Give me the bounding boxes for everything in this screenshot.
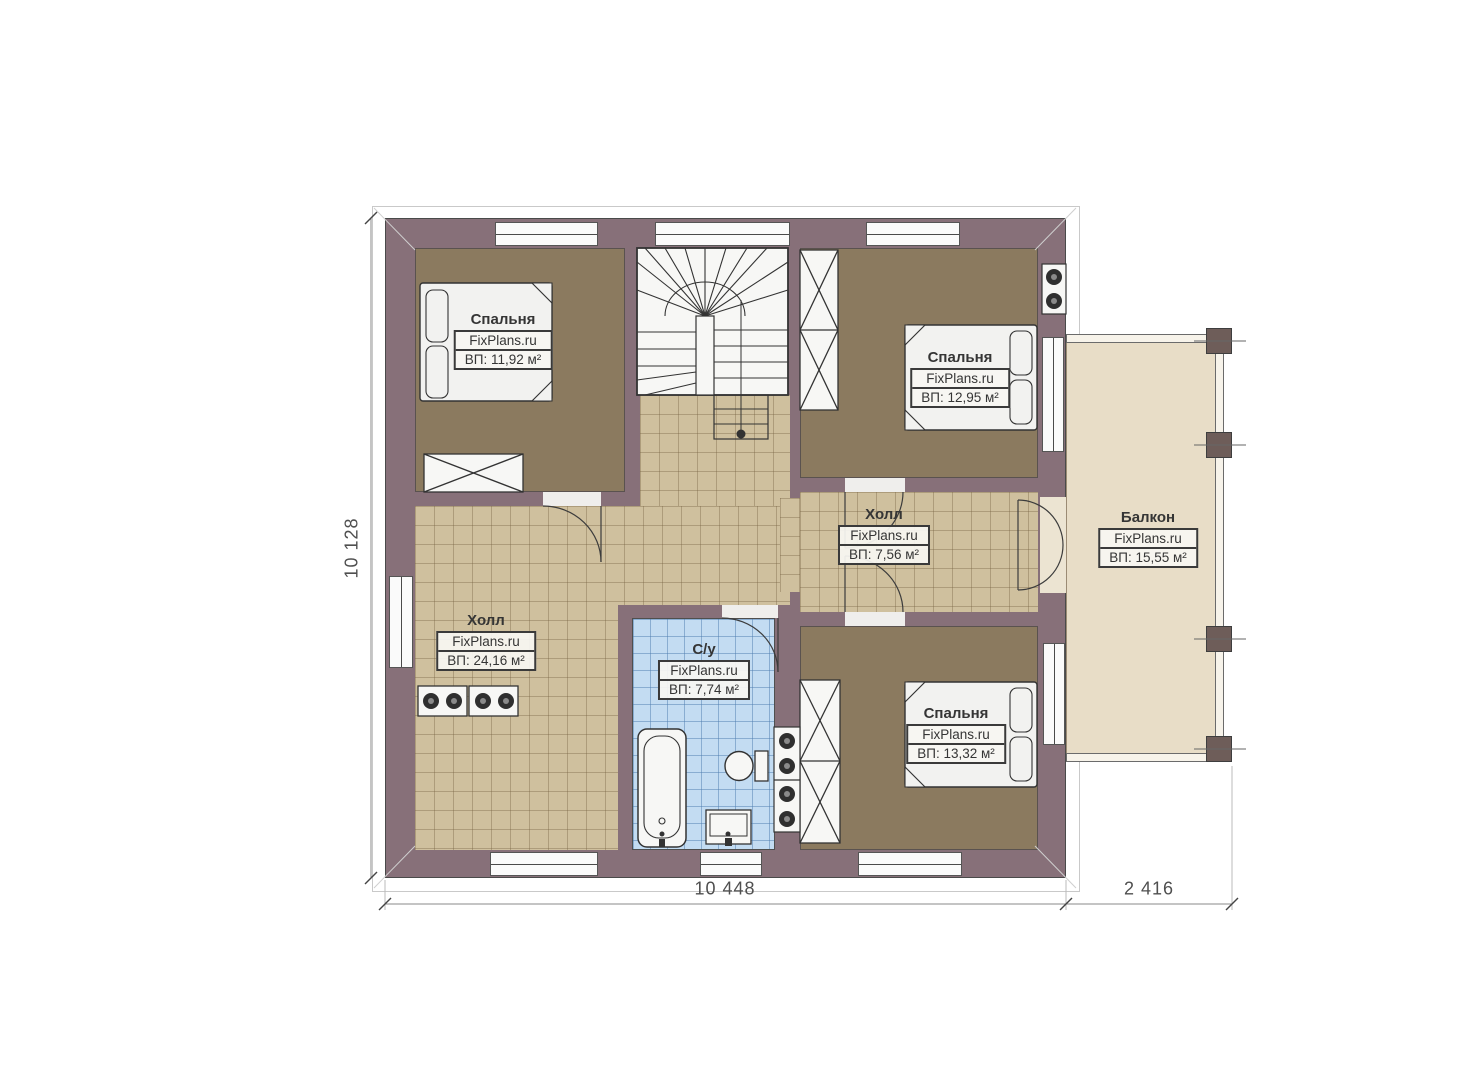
door xyxy=(543,506,601,562)
sink xyxy=(706,810,751,846)
vent-unit xyxy=(1042,264,1066,314)
dimension-left-height: 10 128 xyxy=(342,517,363,578)
watermark: FixPlans.ru xyxy=(456,332,551,351)
room-label-hall-center: Холл FixPlans.ru ВП: 7,56 м² xyxy=(838,506,930,565)
vent-unit xyxy=(774,727,800,832)
watermark: FixPlans.ru xyxy=(840,527,928,546)
dimension-bottom-main: 10 448 xyxy=(694,879,755,900)
room-label-balcony: Балкон FixPlans.ru ВП: 15,55 м² xyxy=(1098,509,1198,568)
room-name: Спальня xyxy=(910,349,1010,366)
vent-unit xyxy=(418,686,518,716)
wardrobe xyxy=(424,454,523,492)
dimension-bottom-balcony: 2 416 xyxy=(1124,879,1174,900)
room-name: С/у xyxy=(658,641,750,658)
watermark: FixPlans.ru xyxy=(438,633,534,652)
toilet xyxy=(725,751,768,781)
room-label-bedroom-top-right: Спальня FixPlans.ru ВП: 12,95 м² xyxy=(910,349,1010,408)
room-area: ВП: 15,55 м² xyxy=(1100,549,1196,566)
bathtub xyxy=(638,729,686,847)
balcony-post-ticks xyxy=(1194,341,1246,749)
staircase xyxy=(637,248,788,439)
watermark: FixPlans.ru xyxy=(660,662,748,681)
room-label-bedroom-bottom-right: Спальня FixPlans.ru ВП: 13,32 м² xyxy=(906,705,1006,764)
wardrobe xyxy=(800,680,840,843)
room-name: Холл xyxy=(436,612,536,629)
balcony-double-door xyxy=(1018,500,1063,590)
floor-plan: Спальня FixPlans.ru ВП: 11,92 м² Спальня… xyxy=(0,0,1473,1080)
room-name: Балкон xyxy=(1098,509,1198,526)
room-area: ВП: 7,74 м² xyxy=(660,681,748,698)
watermark: FixPlans.ru xyxy=(912,370,1008,389)
watermark: FixPlans.ru xyxy=(908,726,1004,745)
watermark: FixPlans.ru xyxy=(1100,530,1196,549)
wardrobe xyxy=(800,250,838,410)
room-name: Спальня xyxy=(454,311,553,328)
room-label-hall-left: Холл FixPlans.ru ВП: 24,16 м² xyxy=(436,612,536,671)
plan-graphics xyxy=(0,0,1473,1080)
room-area: ВП: 11,92 м² xyxy=(456,351,551,368)
room-name: Спальня xyxy=(906,705,1006,722)
room-label-bathroom: С/у FixPlans.ru ВП: 7,74 м² xyxy=(658,641,750,700)
room-area: ВП: 12,95 м² xyxy=(912,389,1008,406)
room-name: Холл xyxy=(838,506,930,523)
room-area: ВП: 24,16 м² xyxy=(438,652,534,669)
room-area: ВП: 7,56 м² xyxy=(840,546,928,563)
room-area: ВП: 13,32 м² xyxy=(908,745,1004,762)
room-label-bedroom-top-left: Спальня FixPlans.ru ВП: 11,92 м² xyxy=(454,311,553,370)
